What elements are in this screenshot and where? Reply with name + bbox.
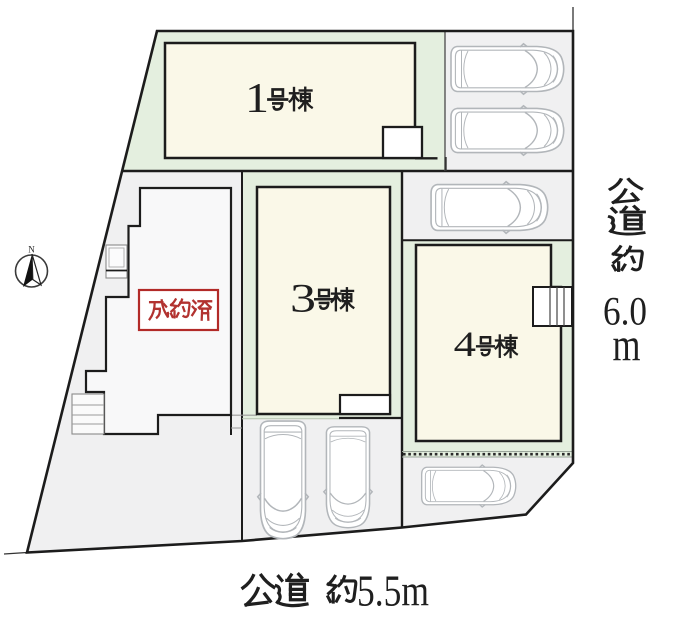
svg-text:3: 3 <box>290 276 316 321</box>
svg-text:4: 4 <box>454 324 476 364</box>
svg-text:N: N <box>28 245 35 255</box>
svg-text:m: m <box>613 319 641 371</box>
svg-text:1: 1 <box>245 76 269 122</box>
svg-text:5.5m: 5.5m <box>357 567 429 616</box>
